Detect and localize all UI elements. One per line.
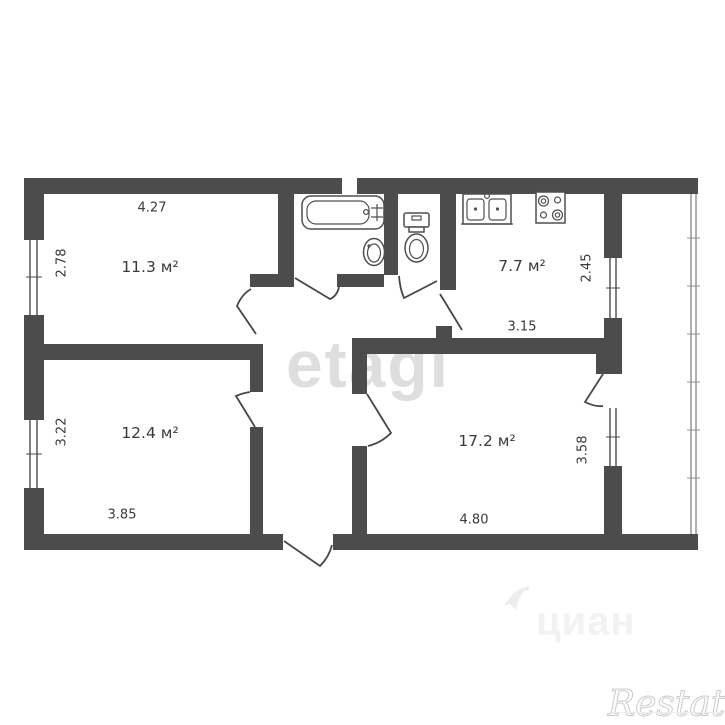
balcony-glazing [687, 194, 700, 534]
door-room-bottom-left [236, 392, 255, 427]
vent-niche [342, 178, 357, 194]
door-living-room [367, 394, 391, 446]
room-area-label: 7.7 м² [498, 257, 545, 275]
cian-watermark: циан [536, 600, 636, 645]
bathtub-icon [302, 196, 384, 229]
washbasin-icon [364, 239, 385, 266]
door-room-top-left [237, 289, 256, 334]
dimension-label: 3.15 [508, 320, 537, 335]
dimension-label: 2.45 [580, 254, 595, 283]
balcony-door [585, 374, 603, 406]
door-wc [399, 276, 437, 298]
door-bathroom [295, 278, 339, 299]
dimension-label: 3.58 [576, 436, 591, 465]
kitchen-sink-icon [461, 194, 513, 224]
dimension-label: 4.27 [138, 201, 167, 216]
dimension-label: 2.78 [55, 249, 70, 278]
restate-watermark: Restate [608, 684, 725, 725]
dimension-label: 3.85 [108, 508, 137, 523]
room-area-label: 12.4 м² [121, 424, 178, 442]
room-area-label: 11.3 м² [121, 258, 178, 276]
stove-icon [536, 192, 565, 223]
cian-logo-bird-icon [498, 582, 538, 622]
toilet-icon [404, 213, 429, 262]
floor-plan-image: etagi [0, 0, 725, 725]
door-kitchen [440, 294, 462, 330]
walls [24, 178, 698, 550]
doors [236, 276, 603, 566]
restate-underline [612, 712, 720, 713]
room-area-label: 17.2 м² [458, 432, 515, 450]
entrance-opening [283, 534, 333, 550]
dimension-label: 4.80 [460, 513, 489, 528]
dimension-label: 3.22 [55, 418, 70, 447]
